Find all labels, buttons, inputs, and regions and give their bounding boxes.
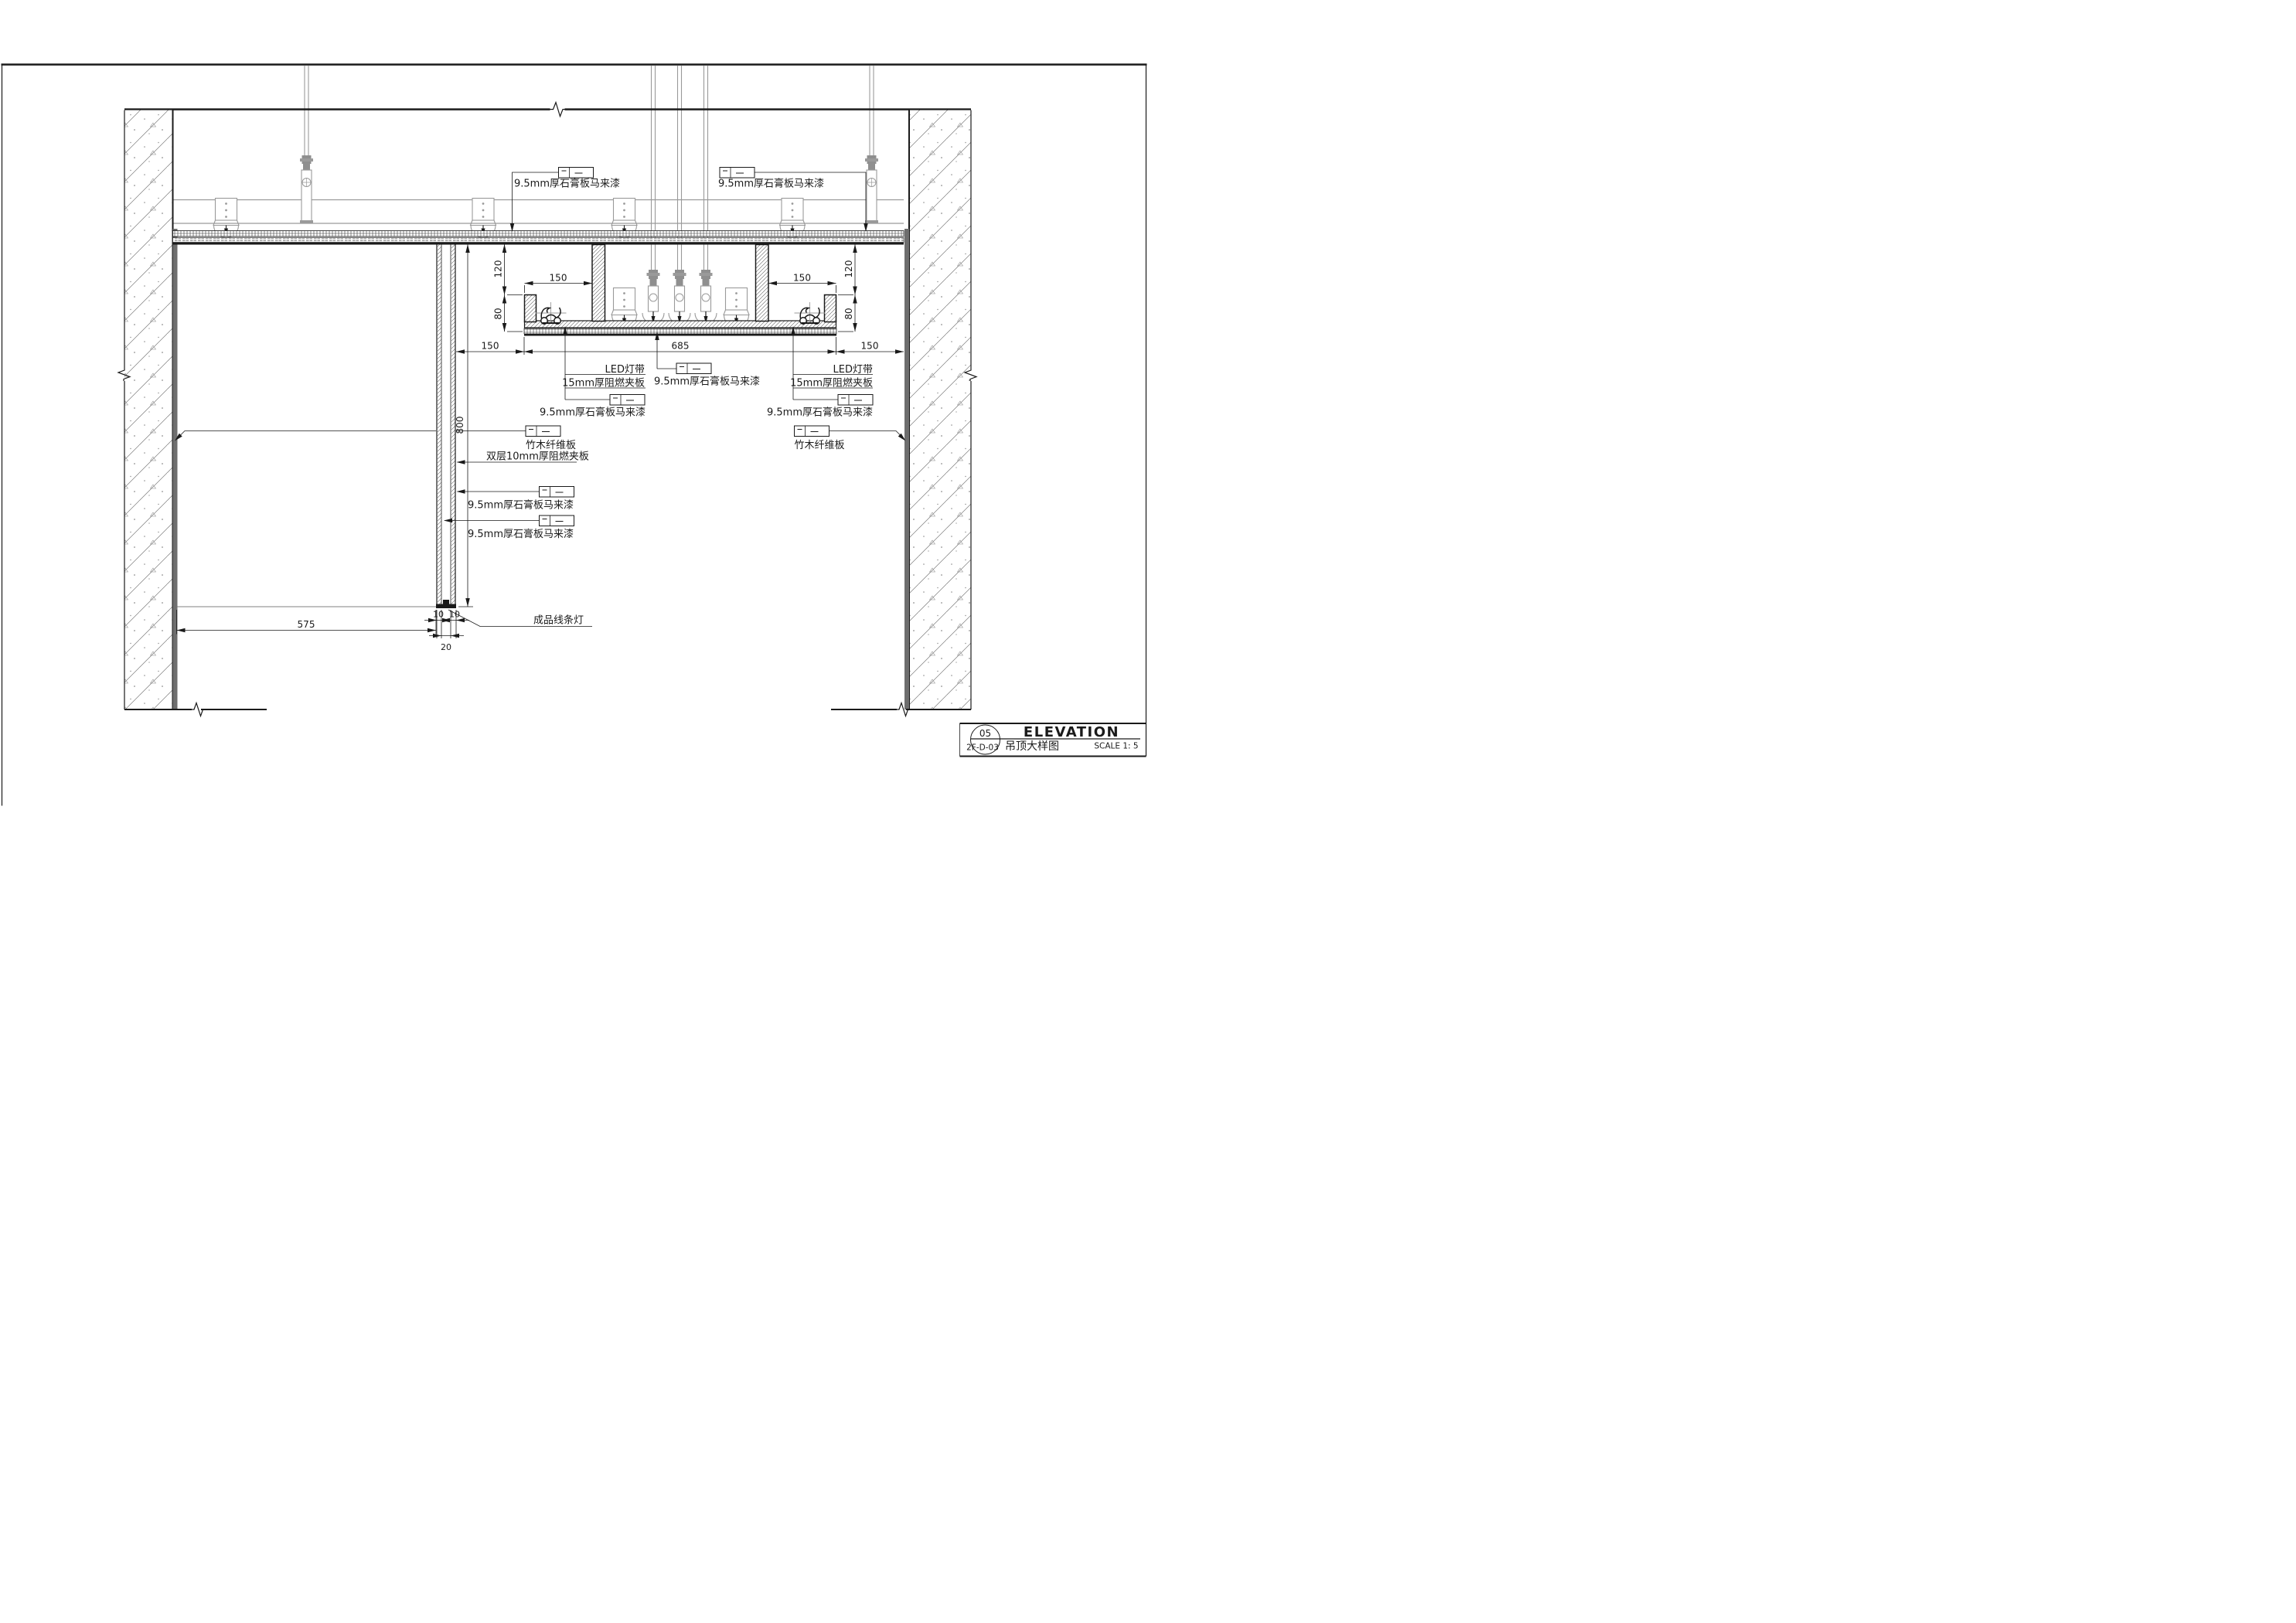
label-gypsum-cove-right: 9.5mm厚石膏板马来漆 <box>767 407 873 419</box>
label-gypsum-middle: 9.5mm厚石膏板马来漆 <box>654 376 760 388</box>
left-wall <box>118 111 267 716</box>
plywood-15mm-layer <box>525 321 836 328</box>
label-double-plywood: 双层10mm厚阻燃夹板 <box>486 451 589 463</box>
dim-cove-width-left: 150 <box>550 273 567 284</box>
label-gypsum-top-right: 9.5mm厚石膏板马来漆 <box>718 178 824 190</box>
material-tag <box>676 363 711 374</box>
right-wall-hatch <box>909 111 971 710</box>
left-wall-hatch <box>124 111 173 710</box>
material-tag <box>559 168 594 179</box>
hanger-rod-icon <box>865 66 878 223</box>
dim-cove-width-right: 150 <box>793 273 811 284</box>
dim-cove-drop-left: 120 <box>493 260 504 278</box>
linear-light-slot <box>443 600 449 604</box>
dim-wall-to-dropwall: 575 <box>298 619 315 630</box>
lower-ceiling-bottom-edge <box>524 334 836 336</box>
drop-wall <box>178 245 457 609</box>
dim-slot-20: 20 <box>441 642 451 652</box>
break-symbol <box>192 703 206 716</box>
material-tag <box>795 426 829 437</box>
gypsum-layer-1 <box>173 231 904 237</box>
suspended-ceiling-upper <box>173 231 904 245</box>
label-bamboo-right: 竹木纤维板 <box>795 440 845 451</box>
gypsum-layer-2 <box>173 238 904 243</box>
material-tag <box>838 395 873 406</box>
drawing-title-cn: 吊顶大样图 <box>1005 740 1059 753</box>
label-led-strip-left: LED灯带 <box>605 364 645 376</box>
label-plywood15-left: 15mm厚阻燃夹板 <box>562 377 645 390</box>
material-tag <box>540 487 574 498</box>
label-gypsum-top-left: 9.5mm厚石膏板马来漆 <box>514 178 620 190</box>
cove-upstand-right <box>825 295 836 322</box>
dim-margin-right: 150 <box>861 341 879 352</box>
drawing-title-en: ELEVATION <box>1024 724 1119 740</box>
long-hanger-rod-icon <box>695 66 717 324</box>
label-bamboo-left: 竹木纤维板 <box>526 440 576 451</box>
gypsum-lower-layer <box>524 328 836 334</box>
long-hanger-rod-icon <box>669 66 690 324</box>
break-symbol <box>550 103 566 117</box>
ceiling-detail-drawing: 150 150 120 80 120 80 150 685 150 800 <box>0 0 1148 811</box>
material-tag <box>526 426 560 437</box>
bamboo-panel-on-wall <box>173 229 178 709</box>
overhead-structure <box>173 66 904 328</box>
drawing-number: 2F-D-03 <box>966 743 999 753</box>
material-tag <box>610 395 645 406</box>
structural-slab-line <box>124 103 971 117</box>
dim-middle-span: 685 <box>672 341 690 352</box>
ceiling-bottom-edge <box>173 243 904 245</box>
bamboo-panel-on-wall <box>904 229 909 709</box>
material-tag <box>540 515 574 526</box>
cove-side-board-left <box>592 245 605 322</box>
material-tag <box>720 168 755 179</box>
cad-elevation-sheet: 150 150 120 80 120 80 150 685 150 800 <box>0 0 1148 811</box>
dim-cove-height-left: 80 <box>493 308 504 319</box>
label-led-strip-right: LED灯带 <box>833 364 873 376</box>
long-hanger-rod-icon <box>642 66 664 324</box>
title-block: 05 2F-D-03 吊顶大样图 ELEVATION SCALE 1: 5 <box>960 723 1146 757</box>
dim-margin-left: 150 <box>482 341 499 352</box>
label-gypsum-dropwall-2: 9.5mm厚石膏板马来漆 <box>468 528 574 540</box>
label-gypsum-dropwall-1: 9.5mm厚石膏板马来漆 <box>468 499 574 512</box>
cove-upstand-left <box>525 295 537 322</box>
label-plywood15-right: 15mm厚阻燃夹板 <box>790 377 873 390</box>
dim-board-10: 10 <box>433 610 444 620</box>
detail-number: 05 <box>979 728 991 739</box>
scale-label: SCALE 1: 5 <box>1094 742 1138 751</box>
label-gypsum-cove-left: 9.5mm厚石膏板马来漆 <box>540 407 646 419</box>
drop-wall-bottom-cap <box>436 604 456 609</box>
dim-cove-height-right: 80 <box>843 308 854 319</box>
dim-cove-drop-right: 120 <box>843 260 854 278</box>
dim-drop-wall-height: 800 <box>455 417 465 434</box>
cove-side-board-right <box>756 245 769 322</box>
hanger-rod-icon <box>300 66 313 223</box>
label-linear-light: 成品线条灯 <box>533 614 584 627</box>
